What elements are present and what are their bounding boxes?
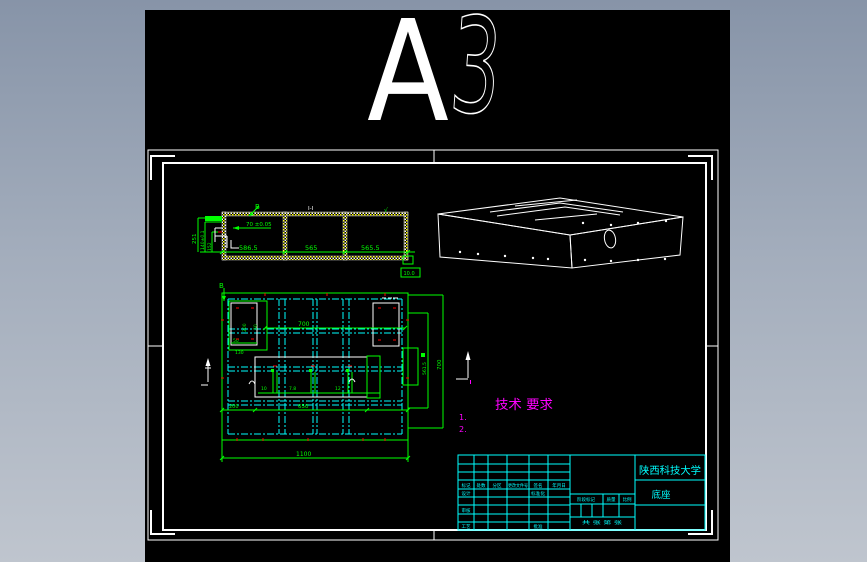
school-name: 陕西科技大学 [639,464,701,477]
rev-header: 签名 [534,482,543,489]
dim-label: 152 [207,242,213,251]
stage-label: 阶段标记 [577,496,595,503]
dim-label: 7.8 [289,386,296,392]
cad-drawing: A 3 [145,10,730,562]
tech-req-item: 2. [459,425,467,434]
rev-header: 分区 [493,482,502,489]
dim-label: 650 [298,404,309,410]
role-label: 批准 [534,523,543,530]
role-label: 审核 [462,507,471,514]
tech-requirements: 技术 要求 1. 2. [459,398,553,434]
plan-view: 10 7.8 12 200 50 50 130 700 [201,282,443,462]
rev-header: 年月日 [552,482,566,489]
rev-header: 处数 [477,482,486,489]
dim-label: 700 [298,321,310,328]
surface-finish-icon: √ [384,207,388,214]
role-label: 标准化 [531,490,546,497]
bolt-holes [459,220,667,262]
dim-label: 586.5 [239,244,258,252]
dim-label: 1100 [296,451,311,458]
sheet-size-logo: A 3 [367,10,506,154]
dim-label: 50 [253,324,259,330]
weight-label: 质量 [607,496,616,503]
part-name: 底座 [651,489,671,501]
rev-header: 更改文件号 [508,482,528,489]
dim-label: 200 [242,323,248,332]
section-arrow-label: B [219,282,224,290]
logo-letter-3: 3 [446,10,507,146]
dim-label: 200 [229,404,239,410]
iso-view [438,198,683,268]
dim-label: 70 ±0.05 [246,222,272,228]
tech-req-item: 1. [459,413,467,422]
drawing-viewport[interactable]: A 3 [145,10,730,562]
view-label: I-I [308,206,314,212]
dim-label: 565 [305,244,317,252]
view-arrow-icon [456,351,471,384]
corner-mark-top-right [688,156,712,180]
dim-label: 140±0.1 [200,230,206,250]
scale-label: 比例 [623,496,632,503]
dim-label: 12 [335,386,341,392]
note-box-label: 10.0 [404,271,415,277]
dim-label: 10 [261,386,267,392]
sheet-label: 共 张 第 张 [582,519,623,526]
view-arrow-icon [201,358,211,385]
role-label: 设计 [462,490,471,497]
tech-req-title: 技术 要求 [495,398,553,413]
title-block: 陕西科技大学 底座 标记 处数 分区 更改文件号 签名 年月日 设计 标准化 审… [458,455,705,530]
dim-label: 130 [235,350,244,356]
dim-label: 251 [192,234,198,245]
dim-label: 700 [437,359,443,370]
dim-label: 561.5 [422,362,428,375]
cad-viewer-window: A 3 [0,0,867,562]
rev-header: 标记 [462,482,471,489]
logo-letter-a: A [367,10,449,154]
section-view: 586.5 565 565.5 251 140±0.1 152 70 ±0.05 [192,203,420,277]
bore-hole [603,229,617,249]
role-label: 工艺 [462,524,471,530]
dim-label: 565.5 [361,244,380,252]
